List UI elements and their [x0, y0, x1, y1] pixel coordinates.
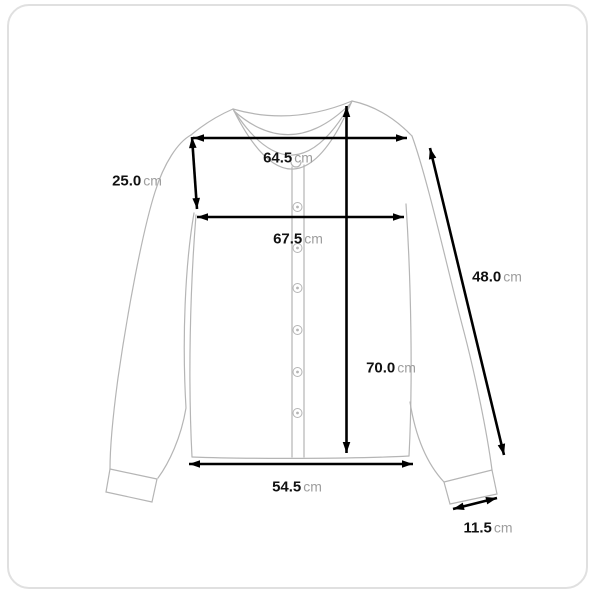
back-neck-top-edge: [233, 101, 352, 116]
chest-width-line: [197, 213, 404, 221]
garment-diagram-canvas: [0, 0, 600, 600]
arrowhead-left-icon: [197, 213, 208, 221]
hem-width-unit: cm: [303, 479, 322, 495]
front-neckband-inner-edge: [233, 101, 352, 155]
right-shoulder-seam: [352, 101, 412, 136]
measurement-diagram: 64.5cm 25.0cm 67.5cm 48.0cm 70.0cm 54.5c…: [0, 0, 600, 600]
sleeve-opening-label: 25.0cm: [112, 174, 162, 189]
total-length-value: 70.0: [366, 360, 395, 377]
cuff-width-value: 11.5: [463, 520, 491, 537]
left-sleeve-inner-edge: [158, 213, 194, 478]
total-length-unit: cm: [397, 360, 416, 376]
arrowhead-right-icon: [485, 497, 497, 504]
left-shoulder-seam: [191, 109, 233, 135]
left-side-seam: [190, 215, 196, 457]
shoulder-width-line: [193, 134, 407, 142]
hem-edge: [192, 456, 409, 458]
arrowhead-left-icon: [189, 460, 200, 468]
sleeve-length-label: 48.0cm: [472, 270, 522, 285]
arrowhead-left-icon: [453, 503, 465, 510]
sleeve-length-unit: cm: [503, 269, 522, 285]
cuff-width-label: 11.5cm: [463, 521, 512, 536]
sleeve-opening-line: [189, 137, 200, 209]
arrowhead-up-icon: [429, 148, 436, 160]
total-length-label: 70.0cm: [366, 361, 416, 376]
hem-width-value: 54.5: [272, 479, 301, 496]
hem-width-label: 54.5cm: [272, 480, 322, 495]
arrowhead-down-icon: [343, 442, 351, 453]
arrowhead-left-icon: [193, 134, 204, 142]
chest-width-unit: cm: [304, 231, 323, 247]
right-sleeve-outer-edge: [412, 136, 492, 470]
chest-width-value: 67.5: [273, 231, 302, 248]
cuff-width-unit: cm: [494, 520, 513, 536]
arrowhead-right-icon: [393, 213, 404, 221]
arrowhead-right-icon: [402, 460, 413, 468]
sleeve-length-line: [429, 148, 505, 455]
shoulder-width-value: 64.5: [263, 150, 292, 167]
sleeve-length-value: 48.0: [472, 269, 501, 286]
right-side-seam: [406, 204, 411, 456]
shoulder-width-label: 64.5cm: [263, 151, 313, 166]
left-cuff-band: [106, 469, 157, 502]
chest-width-label: 67.5cm: [273, 232, 323, 247]
shoulder-width-unit: cm: [294, 150, 313, 166]
sleeve-opening-unit: cm: [143, 173, 162, 189]
sleeve-opening-value: 25.0: [112, 173, 141, 190]
arrowhead-down-icon: [498, 443, 505, 455]
total-length-line: [343, 106, 351, 453]
right-sleeve-inner-edge: [410, 402, 444, 482]
arrowhead-right-icon: [396, 134, 407, 142]
hem-width-line: [189, 460, 413, 468]
